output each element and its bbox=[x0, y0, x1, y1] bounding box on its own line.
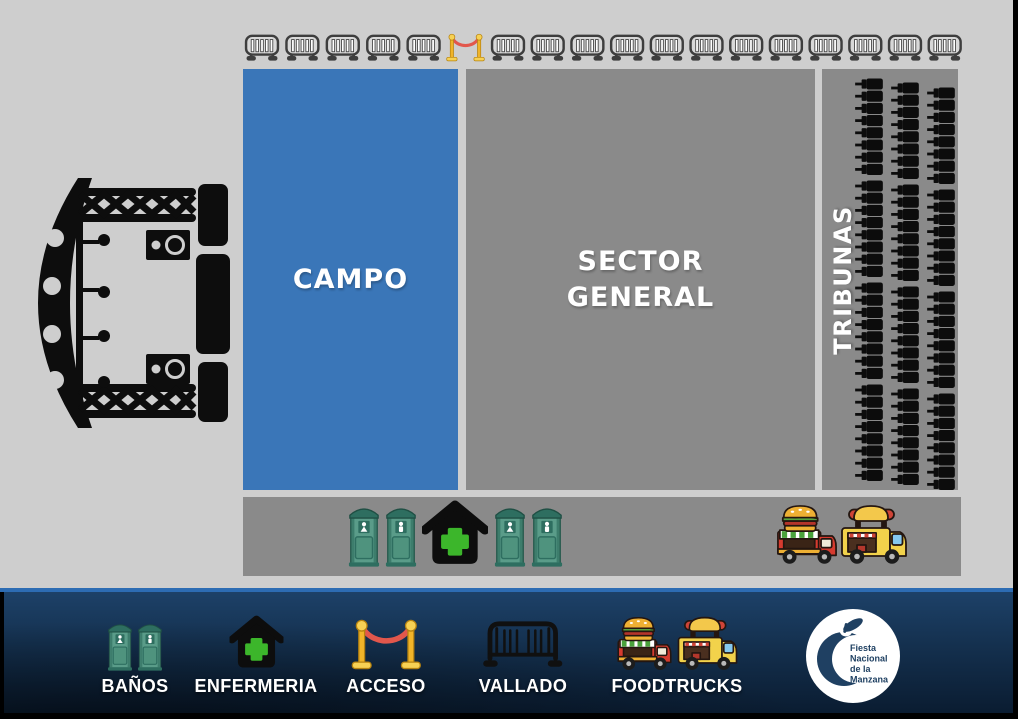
logo-text-line2: Nacional bbox=[850, 654, 888, 664]
campo-area: CAMPO bbox=[243, 69, 458, 490]
toilet-icon-male bbox=[384, 502, 418, 568]
legend-label-banos: BAÑOS bbox=[101, 676, 168, 697]
tribunas-seats bbox=[850, 70, 958, 490]
legend-item-vallado: VALLADO bbox=[479, 608, 567, 697]
sector-label-line1: SECTOR bbox=[567, 244, 715, 279]
legend-item-acceso: ACCESO bbox=[346, 608, 425, 697]
first-aid-house-icon bbox=[228, 608, 284, 672]
logo-text-line3: de la bbox=[850, 664, 872, 674]
barrier-fence-icon bbox=[480, 608, 566, 672]
legend-label-vallado: VALLADO bbox=[479, 676, 567, 697]
toilet-icon-male bbox=[530, 502, 564, 568]
sector-label-line2: GENERAL bbox=[567, 280, 715, 315]
burger-foodtruck-icon bbox=[776, 504, 838, 566]
stanchion-rope-icon bbox=[347, 608, 425, 672]
legend-label-foodtrucks: FOODTRUCKS bbox=[612, 676, 743, 697]
logo-text-line1: Fiesta bbox=[850, 643, 877, 653]
festival-logo: Fiesta Nacional de la Manzana bbox=[806, 609, 900, 703]
campo-label: CAMPO bbox=[293, 264, 408, 295]
legend-label-enfermeria: ENFERMERIA bbox=[194, 676, 317, 697]
legend-item-foodtrucks: FOODTRUCKS bbox=[612, 608, 743, 697]
legend-label-acceso: ACCESO bbox=[346, 676, 425, 697]
hotdog-foodtruck-icon bbox=[840, 502, 908, 566]
venue-map-slide: CAMPO SECTOR GENERAL TRIBUNAS bbox=[0, 0, 1013, 713]
legend-item-banos: BAÑOS bbox=[101, 608, 168, 697]
toilet-icon-female bbox=[493, 502, 527, 568]
toilet-icon-female bbox=[347, 502, 381, 568]
legend-item-enfermeria: ENFERMERIA bbox=[194, 608, 317, 697]
perimeter-barrier-row bbox=[242, 31, 966, 63]
first-aid-icon bbox=[422, 500, 488, 568]
toilets-icon bbox=[106, 608, 164, 672]
logo-text-line4: Manzana bbox=[850, 675, 889, 685]
sector-general-area: SECTOR GENERAL bbox=[466, 69, 815, 490]
stage-icon bbox=[28, 178, 230, 428]
food-trucks-icon bbox=[616, 608, 738, 672]
